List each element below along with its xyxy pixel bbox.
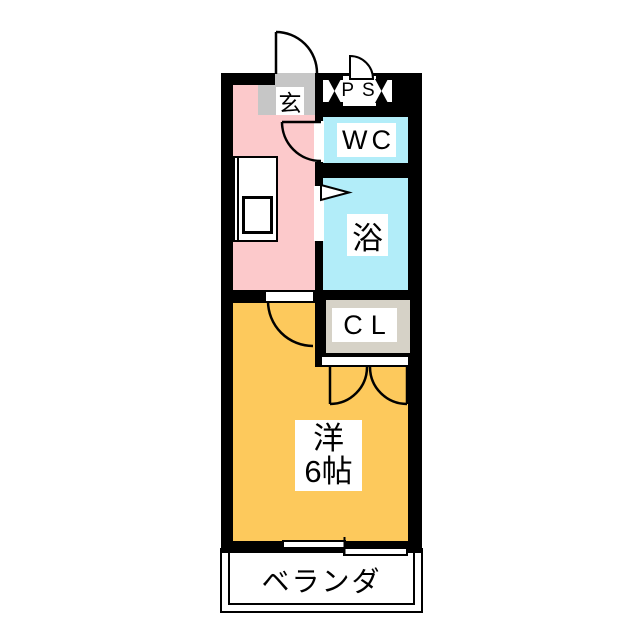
main-room-label-line2: 6帖 <box>304 456 352 489</box>
entrance-label: 玄 <box>279 84 302 118</box>
sliding-window-right-panel <box>343 547 408 556</box>
wall-patch-left-of-track <box>315 355 322 367</box>
main-room-door-opening <box>266 292 313 301</box>
bath-door-opening <box>314 186 324 241</box>
floor-plan: ベランダ 玄 PS WC 浴 CL 洋 6帖 <box>0 0 640 640</box>
ps-label: PS <box>338 79 378 103</box>
bath-label: 浴 <box>352 213 383 258</box>
wc-door-opening <box>314 121 324 162</box>
sliding-window-left-panel <box>282 540 346 549</box>
entrance-label-box: 玄 <box>276 87 304 115</box>
wall-patch-right-of-track <box>408 355 422 367</box>
wc-label: WC <box>338 125 395 156</box>
closet-door-track <box>320 355 410 367</box>
entrance-door-arc <box>276 32 317 74</box>
bath-label-box: 浴 <box>347 214 388 256</box>
wc-label-box: WC <box>337 123 396 157</box>
kitchen-sink <box>242 196 273 234</box>
top-wall-segment <box>221 73 275 85</box>
main-room-label-line1: 洋 <box>313 423 344 456</box>
closet-label: CL <box>335 310 394 341</box>
closet-label-box: CL <box>332 308 397 342</box>
main-room-label-box: 洋 6帖 <box>295 420 362 491</box>
kitchen-counter-edge-line <box>237 158 239 240</box>
veranda-label: ベランダ <box>228 560 415 600</box>
